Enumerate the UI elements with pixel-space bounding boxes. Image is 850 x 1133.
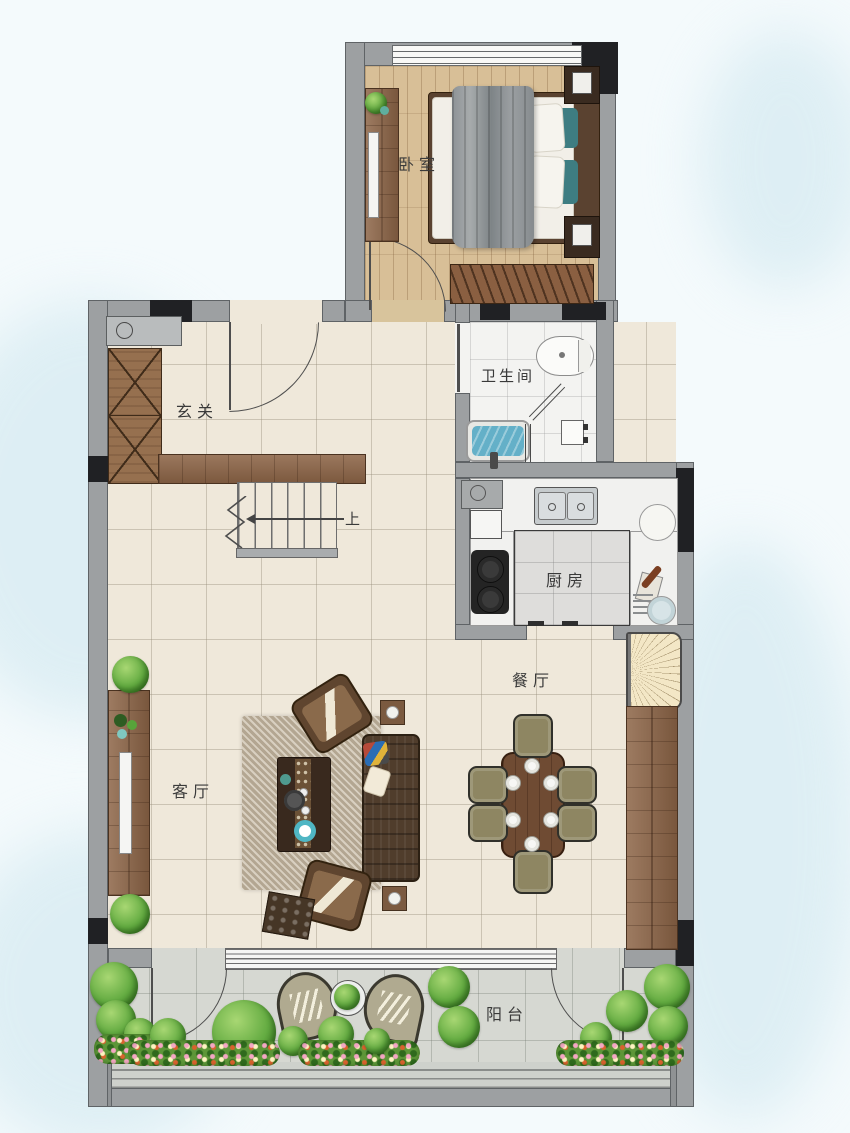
dining-side-walkway	[626, 706, 678, 950]
shoe-cabinet-bowl	[116, 322, 133, 339]
bed-blanket	[452, 86, 534, 248]
bathroom-tap-1	[583, 424, 588, 430]
room-label-entry: 玄关	[176, 398, 218, 422]
tv-cabinet-pot-3	[117, 729, 127, 739]
column-left-wall-low	[88, 918, 108, 944]
room-label-dining: 餐厅	[512, 667, 554, 691]
bathroom-sink	[561, 420, 584, 445]
dining-plate	[543, 812, 559, 828]
tv-cabinet-pot-2	[127, 720, 137, 730]
living-tv	[119, 752, 132, 854]
bathtub-faucet	[490, 452, 498, 469]
bedroom-tv	[368, 132, 379, 218]
coffee-table-teapot	[280, 774, 291, 785]
bathroom-tap-2	[583, 437, 588, 443]
bedroom-door-leaf	[369, 237, 371, 310]
bed-end-bench	[450, 264, 594, 304]
stairs-direction-line	[254, 518, 344, 520]
toilet-flush-dot	[559, 352, 565, 358]
toilet-tank	[578, 340, 591, 372]
tv-cabinet-pot-1	[114, 714, 127, 727]
room-label-bedroom: 卧室	[398, 151, 440, 175]
dining-chair-right-upper	[557, 766, 597, 804]
room-label-balcony: 阳台	[486, 1001, 528, 1025]
bedroom-wall-left	[345, 42, 365, 322]
bedroom-wall-bottom-a	[345, 300, 372, 322]
balcony-sliding-door	[225, 948, 557, 970]
ottoman	[262, 891, 315, 940]
room-label-bathroom: 卫生间	[481, 365, 535, 386]
dining-plate	[505, 812, 521, 828]
dining-chair-right-lower	[557, 804, 597, 842]
staircase-break-line	[222, 496, 248, 548]
kitchen-wall-bottom-a	[455, 624, 527, 640]
dining-chair-left-upper	[468, 766, 508, 804]
kitchen-cabinet-box	[470, 510, 502, 539]
bathtub	[466, 420, 530, 462]
island-handle-2	[562, 621, 578, 626]
lounge-chair-slats	[289, 988, 324, 1023]
kitchen-stove	[471, 550, 509, 614]
armchair-bottom-cushion	[305, 869, 364, 922]
balcony-plant	[606, 990, 648, 1032]
kitchen-sink-drain-right	[577, 503, 585, 511]
living-plant-top	[112, 656, 149, 693]
stairs-up-label: 上	[345, 508, 360, 529]
island-handle-1	[528, 621, 544, 626]
stove-burner-1	[477, 556, 504, 583]
coffee-table-cup-2	[301, 806, 310, 815]
staircase-landing-strip	[236, 548, 338, 558]
side-table-bottom-vase	[388, 892, 401, 905]
dining-chair-left-lower	[468, 804, 508, 842]
lounge-chair-slats	[376, 990, 411, 1025]
balcony-flowerbed	[298, 1040, 420, 1066]
balcony-table-plant	[334, 984, 360, 1010]
living-plant-bottom	[110, 894, 150, 934]
column-right-wall-kitchen	[676, 468, 694, 552]
floor-plan-canvas: 卧室 卫生间 玄关 厨房 餐厅 客厅 阳台 上	[0, 0, 850, 1133]
balcony-plant-center	[428, 966, 470, 1008]
nightstand-bottom-lamp	[572, 224, 592, 246]
dining-plate	[543, 775, 559, 791]
column-bedroom-bottom-a	[480, 302, 510, 320]
toilet	[536, 336, 594, 376]
dining-chair-top	[513, 714, 553, 758]
entry-door-threshold	[228, 300, 324, 324]
stairs-direction-arrow	[246, 514, 255, 524]
column-right-wall-low	[676, 920, 694, 966]
stove-burner-2	[477, 586, 504, 613]
kitchen-sink	[534, 487, 598, 525]
shower-glass-vertical	[525, 424, 531, 462]
kitchen-round-basin	[639, 504, 676, 541]
column-left-wall-mid	[88, 456, 108, 482]
bathtub-water	[472, 426, 524, 456]
room-label-living: 客厅	[172, 778, 214, 802]
room-label-kitchen: 厨房	[546, 567, 588, 591]
balcony-bottom-wall	[88, 1088, 694, 1107]
nightstand-top-lamp	[572, 72, 592, 94]
balcony-plant	[644, 964, 690, 1010]
column-bedroom-bottom-b	[562, 302, 606, 320]
sofa-pillow-color	[363, 740, 390, 766]
dining-plate	[505, 775, 521, 791]
dining-plate	[524, 758, 540, 774]
dining-plate	[524, 836, 540, 852]
bathroom-door-leaf	[457, 324, 460, 392]
entry-wardrobe-upper	[108, 348, 162, 417]
kitchen-sink-drain-left	[548, 503, 556, 511]
side-table-top-vase	[386, 706, 399, 719]
bedroom-window	[392, 45, 582, 66]
bedroom-plant-pot	[380, 106, 389, 115]
dining-chair-bottom	[513, 850, 553, 894]
entry-door-leaf	[229, 322, 231, 410]
entry-bench-cabinet	[158, 454, 366, 484]
balcony-plant	[438, 1006, 480, 1048]
bathroom-wall-right	[596, 300, 614, 462]
coffee-table-bowl	[294, 820, 316, 842]
kitchen-plate	[647, 596, 676, 625]
background-blob	[700, 30, 850, 290]
armchair-top-cushion	[300, 683, 364, 744]
entry-wardrobe-lower	[108, 415, 162, 484]
dining-cabinet-fan	[626, 632, 682, 710]
main-wall-top-b	[322, 300, 345, 322]
balcony-flowerbed	[556, 1040, 684, 1066]
kitchen-hood-vent	[470, 485, 486, 501]
balcony-plant	[364, 1028, 390, 1054]
balcony-flowerbed	[128, 1040, 280, 1066]
